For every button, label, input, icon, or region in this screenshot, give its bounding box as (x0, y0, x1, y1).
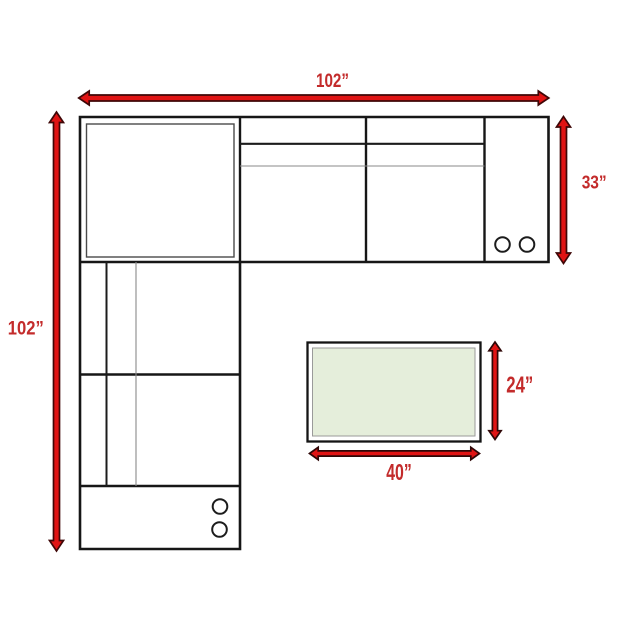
svg-text:102”: 102” (316, 71, 349, 92)
svg-text:40”: 40” (386, 459, 412, 485)
svg-text:24”: 24” (506, 371, 533, 397)
svg-text:102”: 102” (8, 319, 44, 340)
svg-text:33”: 33” (582, 173, 607, 193)
